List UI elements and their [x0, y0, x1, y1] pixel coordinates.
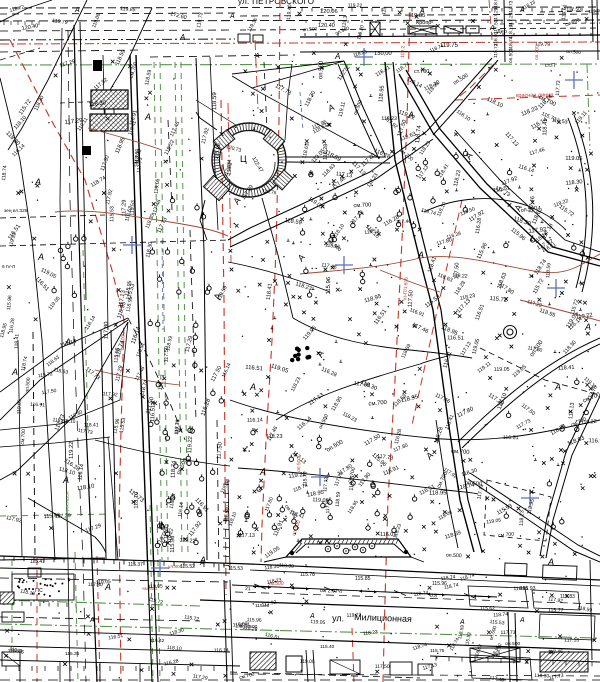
- svg-text:зең ел.325: зең ел.325: [4, 208, 28, 214]
- svg-text:116.91: 116.91: [30, 402, 45, 409]
- svg-text:А: А: [334, 52, 340, 61]
- svg-text:А: А: [199, 555, 206, 565]
- svg-text:115.72: 115.72: [493, 43, 500, 58]
- svg-text:116.51: 116.51: [150, 405, 156, 422]
- svg-text:6 IV-Л: 6 IV-Л: [2, 264, 15, 270]
- svg-text:118.23: 118.23: [381, 116, 397, 122]
- svg-text:119.11: 119.11: [349, 475, 356, 491]
- svg-text:А: А: [407, 110, 414, 120]
- svg-text:118.74: 118.74: [493, 612, 508, 619]
- svg-text:А: А: [254, 53, 260, 60]
- svg-text:ул.: ул.: [332, 613, 344, 623]
- svg-text:117.50: 117.50: [566, 7, 581, 13]
- svg-text:119.05: 119.05: [312, 497, 328, 504]
- svg-text:117.13: 117.13: [239, 532, 255, 539]
- svg-text:119.22: 119.22: [187, 436, 194, 453]
- svg-text:120.40: 120.40: [318, 23, 335, 29]
- svg-text:А: А: [519, 617, 525, 624]
- svg-text:оп.700: оп.700: [534, 45, 541, 60]
- svg-text:115.72: 115.72: [302, 471, 308, 486]
- svg-text:115.53: 115.53: [228, 566, 243, 572]
- svg-text:116.14: 116.14: [247, 417, 263, 424]
- svg-text:119.22: 119.22: [69, 441, 75, 459]
- svg-text:116.91: 116.91: [589, 438, 600, 444]
- svg-text:118.30: 118.30: [534, 673, 549, 680]
- svg-text:А: А: [74, 7, 80, 14]
- svg-text:А: А: [144, 112, 151, 122]
- svg-text:115.53: 115.53: [109, 206, 115, 222]
- svg-text:А: А: [249, 382, 256, 392]
- svg-text:119.05: 119.05: [310, 619, 326, 626]
- svg-text:А: А: [62, 475, 69, 485]
- svg-text:ул. ПЕТРОВСКОГО: ул. ПЕТРОВСКОГО: [238, 0, 314, 6]
- svg-text:120.06: 120.06: [320, 9, 338, 15]
- svg-text:оп.500: оп.500: [508, 48, 515, 63]
- svg-text:130,00: 130,00: [374, 51, 392, 57]
- svg-text:117.92: 117.92: [103, 391, 119, 398]
- svg-text:оп.500: оп.500: [446, 553, 462, 560]
- svg-text:116.51: 116.51: [447, 335, 464, 342]
- svg-text:119.05: 119.05: [565, 156, 582, 162]
- svg-text:21: 21: [245, 586, 251, 592]
- svg-text:118.41: 118.41: [14, 334, 21, 349]
- svg-text:117.73: 117.73: [555, 80, 562, 96]
- svg-text:116.51: 116.51: [503, 435, 519, 441]
- svg-text:117.13: 117.13: [564, 637, 579, 643]
- svg-text:ож 2:07½: ож 2:07½: [320, 587, 343, 595]
- svg-text:117.50: 117.50: [163, 346, 170, 362]
- svg-text:119.22: 119.22: [348, 3, 363, 9]
- svg-text:115.40: 115.40: [320, 644, 335, 650]
- svg-text:118.23: 118.23: [519, 510, 526, 526]
- svg-text:зел.узк.газон: зел.узк.газон: [65, 491, 71, 520]
- svg-text:А: А: [37, 252, 44, 262]
- svg-text:А: А: [584, 322, 591, 332]
- svg-text:ож.500: ож.500: [505, 641, 520, 647]
- svg-text:118.41: 118.41: [558, 365, 575, 372]
- svg-text:115.85: 115.85: [355, 576, 371, 582]
- svg-text:118.74: 118.74: [171, 460, 178, 478]
- svg-text:А: А: [417, 250, 424, 260]
- svg-text:119.2: 119.2: [400, 46, 406, 59]
- svg-text:115.53: 115.53: [130, 200, 137, 216]
- svg-text:118.30: 118.30: [279, 563, 294, 570]
- svg-text:118.59: 118.59: [212, 92, 218, 111]
- svg-text:ст.П: ст.П: [545, 63, 555, 69]
- svg-text:Ц: Ц: [240, 154, 247, 164]
- svg-text:119.22: 119.22: [452, 273, 468, 280]
- svg-text:ул.800: ул.800: [168, 564, 183, 570]
- svg-text:см.700: см.700: [353, 202, 371, 209]
- svg-text:119.22: 119.22: [346, 612, 361, 619]
- svg-text:118.59: 118.59: [335, 491, 342, 507]
- svg-text:115.96: 115.96: [326, 276, 333, 294]
- svg-text:117.46: 117.46: [548, 649, 563, 655]
- svg-text:А: А: [11, 367, 18, 377]
- svg-text:118.41: 118.41: [84, 422, 99, 428]
- svg-text:119.05: 119.05: [148, 584, 163, 591]
- svg-text:А: А: [259, 467, 266, 477]
- svg-text:118.95: 118.95: [429, 490, 447, 496]
- svg-text:А: А: [64, 337, 71, 347]
- svg-text:Милиционная: Милиционная: [354, 612, 412, 624]
- svg-text:117.50: 117.50: [375, 664, 390, 670]
- svg-text:оп.500: оп.500: [566, 49, 581, 56]
- svg-text:119.05: 119.05: [494, 367, 510, 373]
- svg-text:оп.500: оп.500: [318, 60, 324, 79]
- svg-text:115.37: 115.37: [128, 562, 143, 568]
- svg-text:А: А: [34, 177, 41, 187]
- svg-text:Кропр: Кропр: [416, 20, 431, 26]
- svg-text:А: А: [104, 582, 111, 592]
- svg-text:119.05: 119.05: [16, 399, 23, 414]
- svg-text:119.22: 119.22: [179, 537, 196, 544]
- svg-text:А: А: [229, 13, 235, 20]
- svg-text:116.91: 116.91: [513, 586, 528, 592]
- svg-text:см.700: см.700: [451, 449, 471, 456]
- svg-text:116.14: 116.14: [214, 648, 229, 654]
- svg-text:115.42: 115.42: [150, 638, 165, 644]
- svg-text:оп.500: оп.500: [302, 26, 317, 33]
- svg-text:115.96: 115.96: [247, 617, 262, 624]
- svg-text:А: А: [179, 33, 185, 42]
- svg-text:115.41: 115.41: [30, 559, 45, 565]
- svg-text:115.36: 115.36: [65, 651, 80, 657]
